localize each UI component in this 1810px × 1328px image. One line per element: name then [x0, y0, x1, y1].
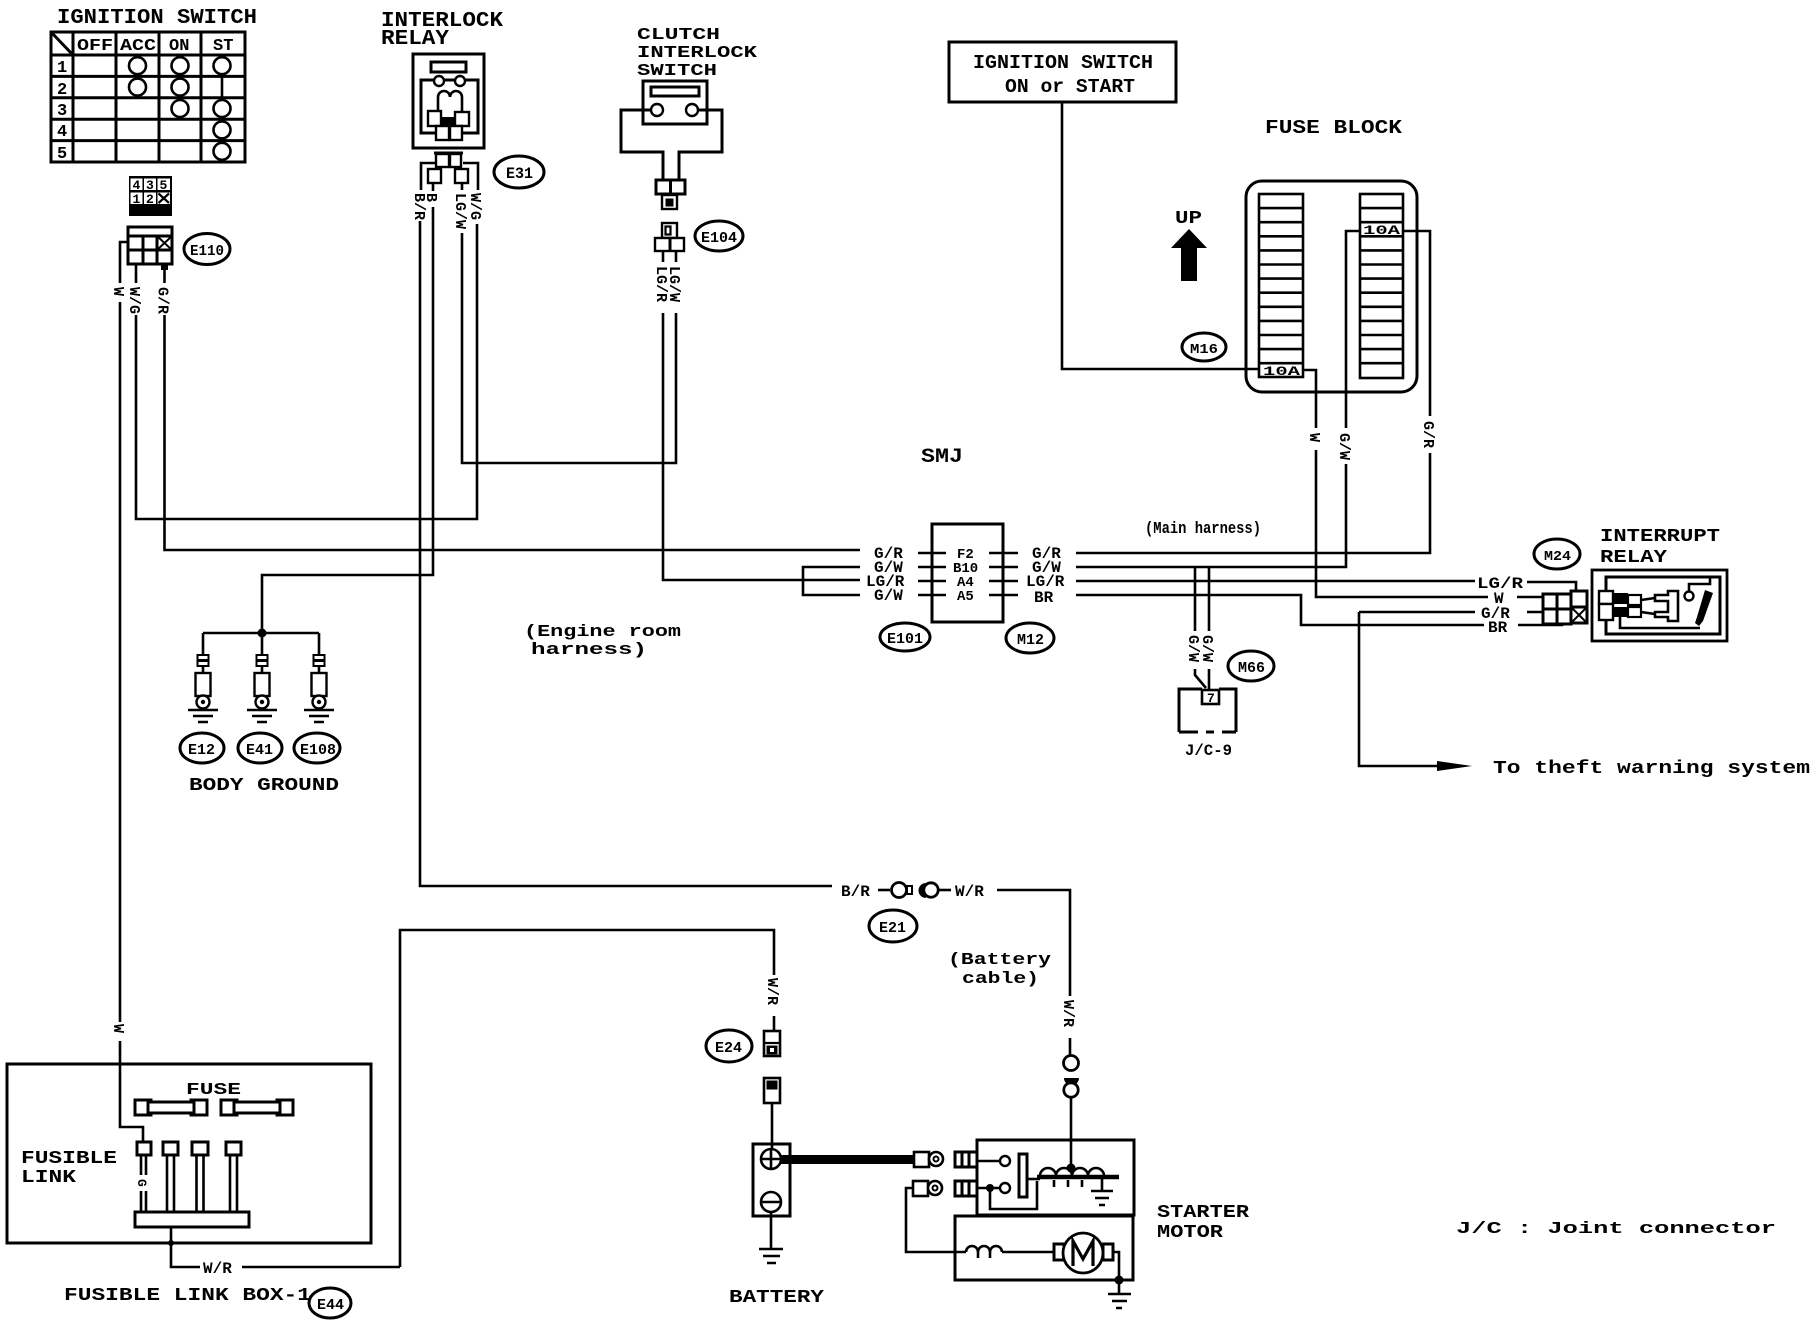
svg-text:G: G — [134, 1179, 149, 1187]
svg-text:ON or START: ON or START — [1005, 76, 1135, 98]
svg-text:M12: M12 — [1017, 632, 1044, 649]
svg-text:M24: M24 — [1544, 549, 1571, 565]
svg-text:E31: E31 — [506, 165, 533, 183]
svg-text:LG/W: LG/W — [665, 266, 682, 302]
svg-text:W: W — [109, 1024, 126, 1033]
svg-text:W/G: W/G — [466, 193, 483, 220]
svg-text:BR: BR — [1034, 589, 1054, 607]
svg-text:FUSIBLE LINK BOX-1: FUSIBLE LINK BOX-1 — [64, 1286, 311, 1306]
svg-text:E44: E44 — [317, 1297, 344, 1314]
svg-text:J/C-9: J/C-9 — [1185, 742, 1232, 760]
svg-text:(Battery: (Battery — [948, 951, 1051, 970]
svg-text:W/R: W/R — [1059, 1000, 1076, 1027]
svg-text:IGNITION SWITCH: IGNITION SWITCH — [57, 7, 257, 30]
svg-text:5: 5 — [57, 145, 67, 164]
svg-text:SWITCH: SWITCH — [637, 62, 717, 81]
svg-text:ON: ON — [169, 37, 189, 56]
svg-text:INTERRUPT: INTERRUPT — [1600, 527, 1720, 547]
svg-text:G/W: G/W — [1198, 635, 1215, 662]
svg-text:M66: M66 — [1238, 660, 1265, 677]
svg-text:(Main harness): (Main harness) — [1145, 520, 1261, 539]
svg-text:E104: E104 — [701, 230, 737, 247]
svg-text:To theft warning system: To theft warning system — [1493, 759, 1810, 779]
svg-text:CLUTCH: CLUTCH — [637, 26, 720, 45]
svg-text:FUSIBLE: FUSIBLE — [21, 1149, 117, 1169]
svg-text:G/W: G/W — [1335, 433, 1352, 460]
svg-text:STARTER: STARTER — [1157, 1203, 1249, 1223]
svg-text:OFF: OFF — [77, 37, 113, 56]
svg-text:W/R: W/R — [955, 883, 984, 901]
svg-text:10A: 10A — [1363, 223, 1400, 238]
svg-text:E110: E110 — [190, 243, 224, 260]
svg-text:E101: E101 — [887, 631, 923, 648]
svg-text:W/R: W/R — [203, 1260, 232, 1278]
svg-text:4: 4 — [57, 123, 67, 142]
svg-text:FUSE BLOCK: FUSE BLOCK — [1265, 117, 1403, 139]
svg-text:E24: E24 — [715, 1040, 742, 1057]
svg-text:ST: ST — [213, 37, 233, 56]
svg-text:BATTERY: BATTERY — [729, 1288, 824, 1308]
svg-text:E108: E108 — [300, 742, 336, 759]
svg-text:1: 1 — [133, 192, 141, 207]
svg-text:W: W — [1305, 433, 1322, 442]
svg-text:J/C : Joint connector: J/C : Joint connector — [1456, 1220, 1776, 1239]
svg-text:MOTOR: MOTOR — [1157, 1223, 1223, 1243]
svg-text:3: 3 — [146, 178, 154, 193]
svg-text:B/R: B/R — [841, 883, 870, 901]
svg-text:E21: E21 — [879, 920, 906, 937]
svg-text:BODY GROUND: BODY GROUND — [189, 776, 339, 796]
svg-text:FUSE: FUSE — [186, 1081, 241, 1100]
svg-text:(Engine room: (Engine room — [524, 623, 681, 642]
svg-text:M16: M16 — [1190, 342, 1218, 358]
svg-text:7: 7 — [1207, 691, 1215, 706]
svg-text:LG/R: LG/R — [1477, 575, 1523, 593]
svg-text:W/G: W/G — [125, 287, 142, 314]
svg-text:W/R: W/R — [763, 978, 780, 1005]
svg-text:ACC: ACC — [120, 37, 156, 56]
svg-text:E12: E12 — [188, 742, 215, 759]
svg-text:5: 5 — [160, 178, 168, 193]
svg-text:W: W — [109, 287, 126, 296]
svg-text:2: 2 — [57, 81, 67, 100]
svg-text:A5: A5 — [957, 589, 974, 605]
svg-text:G/W: G/W — [874, 587, 903, 605]
svg-text:2: 2 — [146, 192, 154, 207]
svg-text:RELAY: RELAY — [381, 28, 449, 51]
svg-text:UP: UP — [1175, 209, 1202, 229]
svg-text:10A: 10A — [1263, 364, 1300, 379]
svg-text:INTERLOCK: INTERLOCK — [637, 44, 758, 63]
svg-text:1: 1 — [57, 59, 67, 78]
svg-text:SMJ: SMJ — [921, 446, 963, 469]
svg-text:G/R: G/R — [1419, 421, 1436, 448]
svg-text:harness): harness) — [531, 641, 647, 660]
svg-text:LINK: LINK — [21, 1168, 76, 1188]
svg-text:cable): cable) — [962, 970, 1039, 989]
svg-text:B: B — [422, 193, 439, 202]
svg-text:E41: E41 — [246, 742, 273, 759]
svg-text:IGNITION SWITCH: IGNITION SWITCH — [973, 52, 1153, 74]
svg-text:4: 4 — [133, 178, 141, 193]
svg-text:BR: BR — [1488, 619, 1508, 637]
svg-text:3: 3 — [57, 102, 67, 121]
svg-text:G/R: G/R — [154, 287, 171, 314]
svg-text:RELAY: RELAY — [1600, 548, 1667, 568]
svg-text:LG/W: LG/W — [451, 193, 468, 229]
